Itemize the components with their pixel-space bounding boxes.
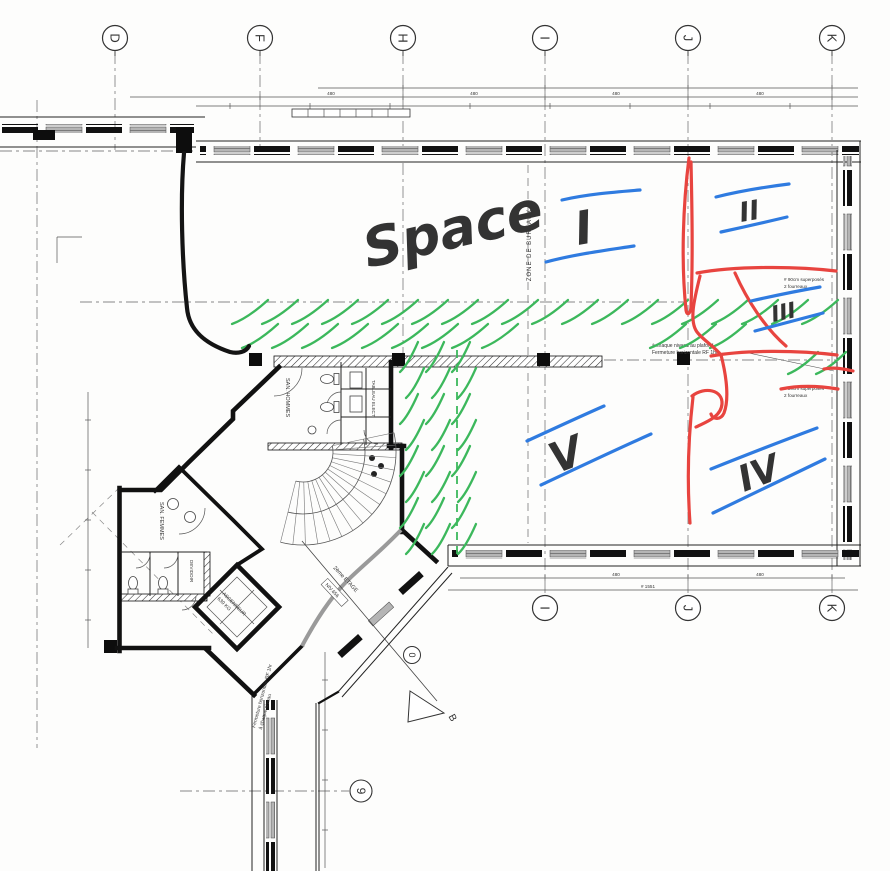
grid-bubbles-top: D F H I J K — [103, 26, 845, 57]
structural-columns — [33, 127, 690, 653]
parapet-detail — [292, 109, 410, 117]
bottom-wing-windows — [452, 550, 859, 559]
dim-bottom-1: 480 — [612, 572, 620, 577]
grid-bubble-k-bottom: K — [825, 604, 840, 613]
grid-bubble-f: F — [253, 34, 268, 42]
red-stub-right-1 — [824, 368, 853, 371]
section-letter: B — [446, 712, 459, 723]
grid-bubble-i: I — [538, 36, 553, 40]
grid-bubble-d: D — [108, 33, 123, 42]
tableau-elect-label: TABLEAU ELECT. — [371, 380, 376, 417]
red-loop — [692, 390, 722, 427]
left-wing-windows — [2, 124, 194, 133]
dim-top-4: 480 — [756, 91, 764, 96]
section-triangle — [408, 691, 444, 722]
black-marker-line — [182, 153, 249, 353]
section-markers: 0 B — [302, 352, 834, 724]
red-partition-horizontal-1 — [697, 267, 836, 273]
dim-top-1: 480 — [327, 91, 335, 96]
san-hommes-label: SAN. HOMMES — [284, 378, 290, 417]
space-numeral-1: I — [571, 200, 597, 256]
sleeves-note-a1: # 90cm superposés — [784, 277, 825, 282]
dim-top-3: 480 — [612, 91, 620, 96]
grid-bubble-nine: 9 — [354, 788, 368, 795]
grid-bubble-i-bottom: I — [538, 606, 553, 610]
landing-furniture — [369, 455, 384, 477]
grid-bubble-k: K — [825, 34, 840, 43]
grid-bubble-j-bottom: J — [681, 605, 696, 612]
red-partition-vertical-bottom — [688, 397, 693, 523]
grid-bubble-j: J — [681, 35, 696, 42]
devidoir-label: DEVIDOIR — [189, 560, 194, 583]
red-hook-down — [711, 355, 727, 418]
dim-top-2: 480 — [470, 91, 478, 96]
grid-bubble-9-group: 9 — [350, 780, 372, 802]
dim-bottom-total: # 1551 — [641, 584, 655, 589]
right-wall-windows — [843, 156, 852, 560]
space-numeral-5: V — [542, 425, 593, 484]
space-word-handwriting: Space — [357, 178, 549, 280]
space-numeral-4: IV — [733, 446, 789, 500]
space-numeral-2: II — [737, 195, 762, 229]
scanned-floor-plan-page: 480 480 480 480 480 480 # 1551 — [0, 0, 890, 871]
grid-bubble-h: H — [396, 33, 411, 42]
sleeves-note-b2: 2 fourreaux — [784, 393, 808, 398]
dim-bottom-2: 480 — [756, 572, 764, 577]
space-numeral-3: III — [769, 298, 798, 328]
grid-lines — [0, 52, 836, 791]
grid-bubbles-bottom: I J K — [533, 596, 845, 621]
top-wall-windows — [200, 146, 859, 155]
floor-plan: 480 480 480 480 480 480 # 1551 — [0, 0, 890, 871]
corridor-window-module — [368, 602, 393, 626]
grid-bubble-zero: 0 — [407, 652, 417, 657]
corridor-windows — [266, 700, 275, 871]
ceiling-note-line2: Fermeture horizontale RF 1hr — [652, 350, 718, 356]
corridor-window-module — [398, 571, 423, 595]
room-labels: ZONE DE BUREAUX SAN. HOMMES SAN. FEMMES … — [158, 209, 533, 623]
corridor-window-module — [337, 634, 362, 658]
san-femmes-label: SAN. FEMMES — [158, 502, 164, 540]
green-highlighter-hatch — [232, 300, 846, 554]
red-partition-horizontal-2 — [711, 351, 837, 356]
